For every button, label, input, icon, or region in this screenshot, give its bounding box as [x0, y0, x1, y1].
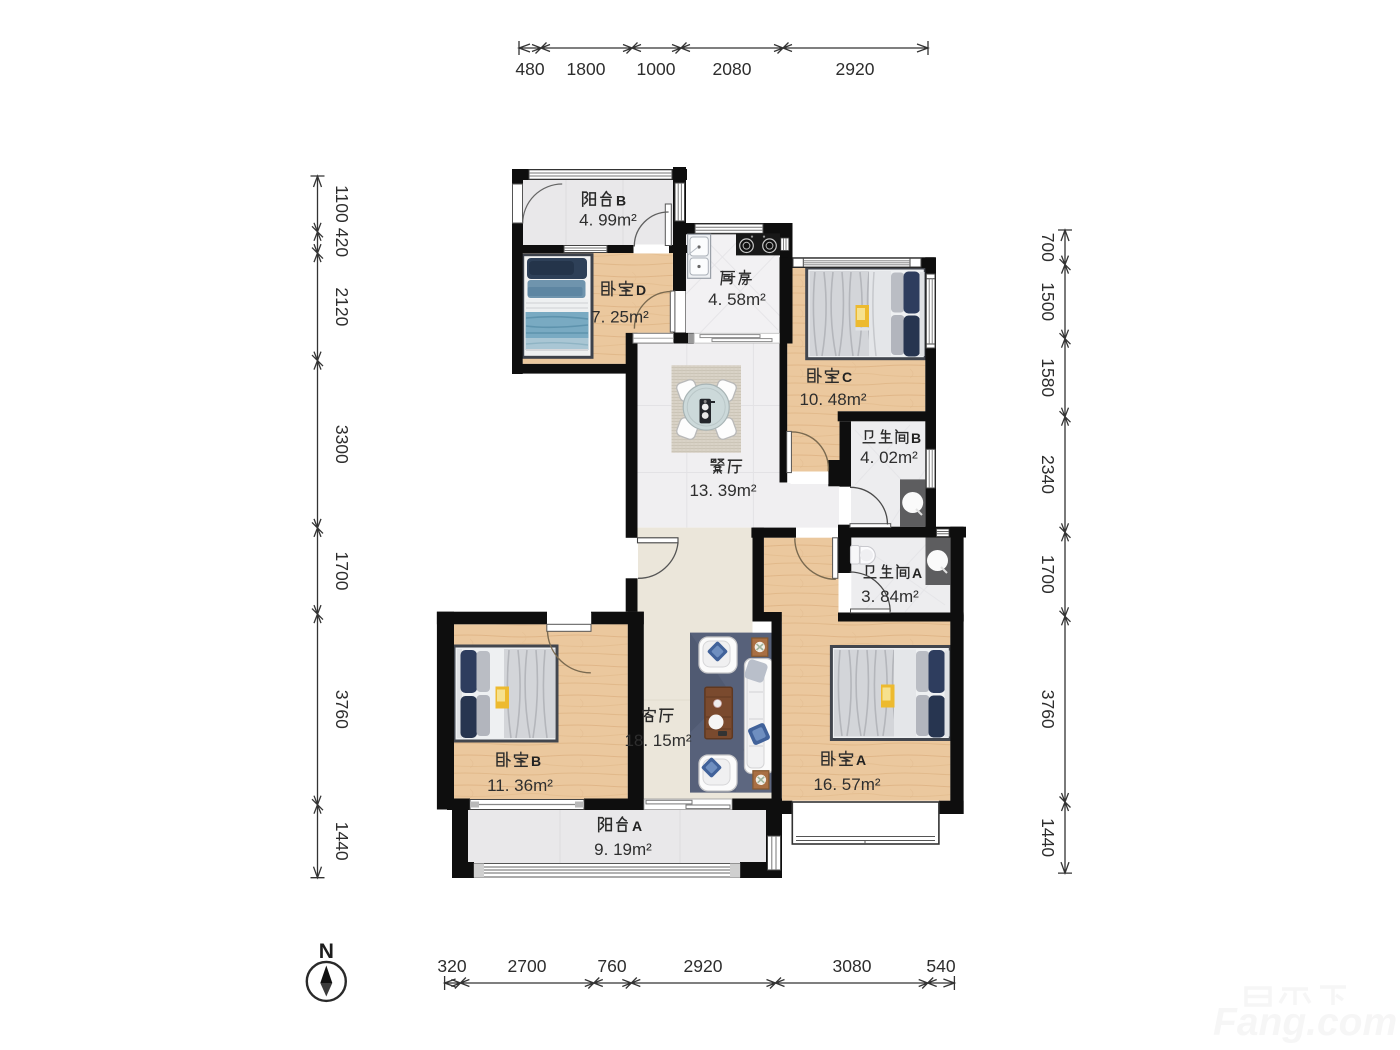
- svg-text:3080: 3080: [833, 956, 872, 976]
- svg-text:1000: 1000: [637, 59, 676, 79]
- svg-text:700: 700: [1038, 233, 1058, 262]
- svg-text:11. 36m²: 11. 36m²: [487, 776, 553, 795]
- svg-text:2080: 2080: [713, 59, 752, 79]
- svg-text:320: 320: [437, 956, 466, 976]
- svg-text:B: B: [531, 753, 541, 769]
- svg-text:2920: 2920: [684, 956, 723, 976]
- svg-text:A: A: [632, 818, 642, 834]
- svg-text:C: C: [842, 369, 852, 385]
- svg-text:2700: 2700: [508, 956, 547, 976]
- svg-text:420: 420: [332, 228, 352, 257]
- svg-text:2120: 2120: [332, 287, 352, 326]
- svg-text:2340: 2340: [1038, 455, 1058, 494]
- svg-text:N: N: [319, 940, 334, 963]
- svg-text:540: 540: [926, 956, 955, 976]
- svg-text:1440: 1440: [332, 822, 352, 861]
- svg-text:4. 58m²: 4. 58m²: [708, 290, 766, 309]
- svg-text:B: B: [911, 430, 921, 446]
- svg-text:D: D: [636, 282, 646, 298]
- svg-text:18. 15m²: 18. 15m²: [624, 731, 691, 750]
- svg-text:1700: 1700: [1038, 555, 1058, 594]
- svg-text:3300: 3300: [332, 425, 352, 464]
- svg-text:4. 02m²: 4. 02m²: [860, 448, 918, 467]
- svg-text:3. 84m²: 3. 84m²: [861, 587, 919, 606]
- svg-text:2920: 2920: [836, 59, 875, 79]
- svg-text:3760: 3760: [332, 690, 352, 729]
- svg-text:7. 25m²: 7. 25m²: [591, 308, 649, 327]
- svg-text:B: B: [616, 193, 626, 209]
- svg-text:A: A: [856, 752, 866, 768]
- svg-text:1440: 1440: [1038, 818, 1058, 857]
- svg-text:1100: 1100: [332, 185, 352, 223]
- svg-text:480: 480: [515, 59, 544, 79]
- svg-text:1800: 1800: [567, 59, 606, 79]
- svg-text:1500: 1500: [1038, 282, 1058, 321]
- svg-text:1700: 1700: [332, 552, 352, 591]
- svg-text:Fang.com: Fang.com: [1213, 1001, 1397, 1044]
- svg-text:760: 760: [597, 956, 626, 976]
- svg-text:1580: 1580: [1038, 358, 1058, 397]
- svg-text:16. 57m²: 16. 57m²: [813, 775, 880, 794]
- svg-text:4. 99m²: 4. 99m²: [579, 211, 637, 230]
- svg-text:13. 39m²: 13. 39m²: [689, 481, 756, 500]
- svg-text:10. 48m²: 10. 48m²: [799, 390, 866, 409]
- svg-text:9. 19m²: 9. 19m²: [594, 840, 652, 859]
- svg-text:A: A: [912, 565, 922, 581]
- svg-text:3760: 3760: [1038, 690, 1058, 729]
